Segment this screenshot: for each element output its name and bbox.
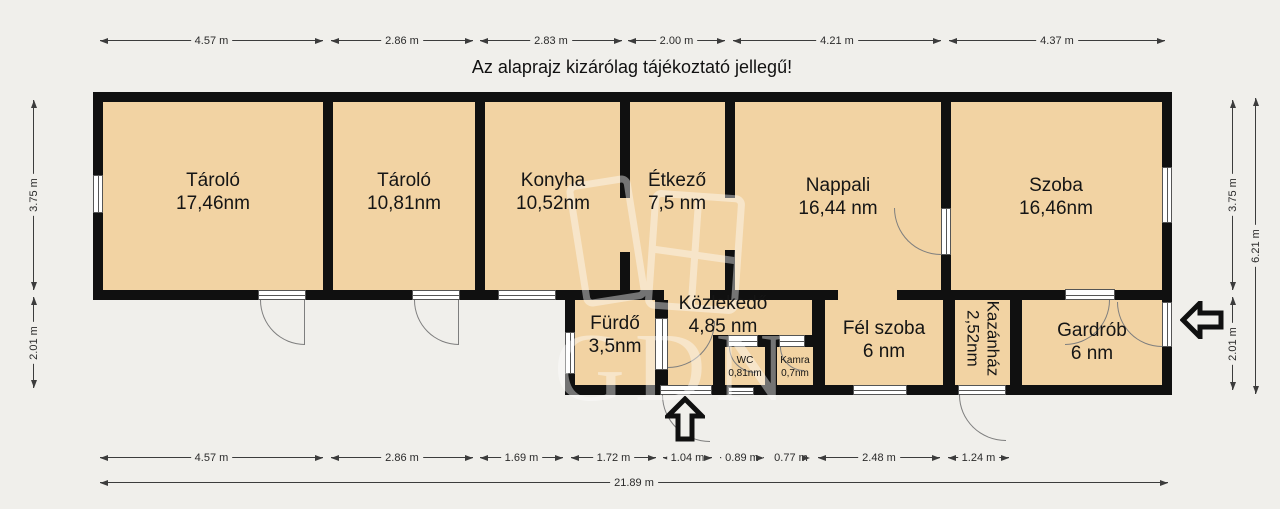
label-fel-szoba: Fél szoba 6 nm: [824, 318, 944, 364]
label-kozlekedo: Közlekedő 4,85 nm: [653, 293, 793, 339]
dim-right-2: 2.01 m: [1232, 297, 1233, 390]
dim-bottom-8: 2.48 m: [818, 457, 940, 458]
door-nappali-szoba: [941, 208, 951, 255]
dim-bottom-3: 1.69 m: [480, 457, 563, 458]
dim-bottom-4: 1.72 m: [571, 457, 656, 458]
room-name: Gardrób: [1032, 320, 1152, 343]
door-arc-kazanhaz: [959, 395, 1006, 441]
window-konyha-bottom: [498, 290, 556, 300]
room-area: 7,5 nm: [587, 193, 767, 216]
room-area: 17,46nm: [123, 193, 303, 216]
dim-top-5: 4.21 m: [733, 40, 941, 41]
dim-bottom-9: 1.24 m: [948, 457, 1009, 458]
room-name: Tároló: [123, 170, 303, 193]
room-area: 6 nm: [824, 341, 944, 364]
dim-total-height: 6.21 m: [1255, 98, 1256, 394]
room-area: 6 nm: [1032, 343, 1152, 366]
door-gardrob-entrance: [1162, 302, 1172, 347]
window-wc-bottom: [728, 387, 754, 395]
door-kozlekedo-entrance: [660, 385, 712, 395]
label-nappali: Nappali 16,44 nm: [748, 175, 928, 221]
window-szoba-gardrob: [1065, 289, 1115, 300]
door-tarolo1: [258, 290, 306, 300]
dim-right-1: 3.75 m: [1232, 100, 1233, 290]
label-kamra: Kamra 0,7nm: [765, 355, 825, 380]
room-area: 0,7nm: [765, 368, 825, 381]
dim-left-2: 2.01 m: [33, 297, 34, 388]
window-tarolo1-left: [93, 175, 103, 213]
label-kazanhaz: Kazánház 2,52nm: [962, 283, 1003, 393]
entrance-arrow-left-icon: [1180, 301, 1224, 339]
room-area: 16,46nm: [966, 198, 1146, 221]
dim-top-2: 2.86 m: [331, 40, 473, 41]
dim-bottom-7: 0.77 m: [772, 457, 810, 458]
room-name: Kamra: [765, 355, 825, 368]
plan-disclaimer-title: Az alaprajz kizárólag tájékoztató jelleg…: [372, 57, 892, 78]
room-name: Fél szoba: [824, 318, 944, 341]
dim-total-width: 21.89 m: [100, 482, 1168, 483]
label-gardrob: Gardrób 6 nm: [1032, 320, 1152, 366]
room-name: Nappali: [748, 175, 928, 198]
dim-bottom-2: 2.86 m: [331, 457, 473, 458]
dim-top-3: 2.83 m: [480, 40, 622, 41]
dim-top-4: 2.00 m: [628, 40, 725, 41]
room-area: 4,85 nm: [653, 316, 793, 339]
dim-bottom-5: 1.04 m: [663, 457, 712, 458]
dim-bottom-1: 4.57 m: [100, 457, 323, 458]
door-tarolo2: [412, 290, 460, 300]
floor-plan: Az alaprajz kizárólag tájékoztató jelleg…: [0, 0, 1280, 509]
room-name: Közlekedő: [653, 293, 793, 316]
door-arc-tarolo1: [260, 300, 305, 345]
room-name: Szoba: [966, 175, 1146, 198]
entrance-arrow-up-icon: [665, 396, 705, 442]
dim-top-6: 4.37 m: [949, 40, 1165, 41]
opening-nappali-felszoba: [838, 290, 897, 300]
room-name: Étkező: [587, 170, 767, 193]
door-arc-tarolo2: [414, 300, 459, 345]
dim-bottom-6: 0.89 m: [720, 457, 764, 458]
label-etkezo: Étkező 7,5 nm: [587, 170, 767, 216]
dim-top-1: 4.57 m: [100, 40, 323, 41]
room-area: 16,44 nm: [748, 198, 928, 221]
room-name: Kazánház: [982, 283, 1002, 393]
dim-left-1: 3.75 m: [33, 100, 34, 290]
room-area: 3,5nm: [555, 336, 675, 359]
room-area: 2,52nm: [962, 283, 982, 393]
window-szoba-right: [1162, 167, 1172, 223]
label-tarolo-1: Tároló 17,46nm: [123, 170, 303, 216]
window-felszoba-bottom: [853, 385, 907, 395]
label-szoba: Szoba 16,46nm: [966, 175, 1146, 221]
